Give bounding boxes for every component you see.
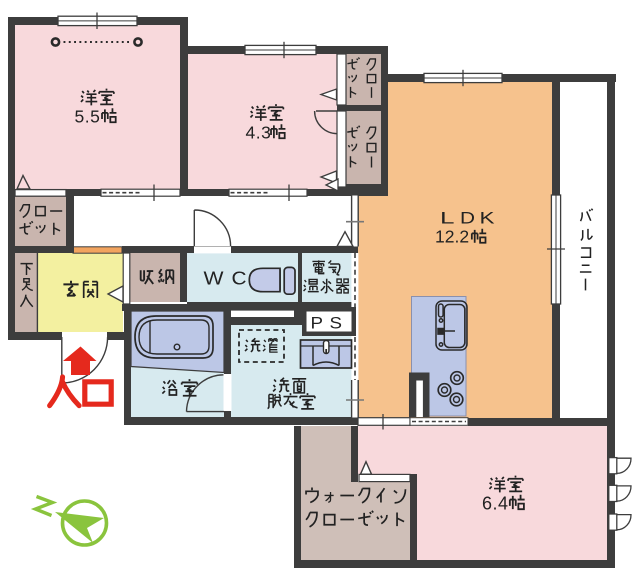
svg-text:4.3: 4.3 xyxy=(246,122,272,142)
svg-text:P: P xyxy=(311,314,324,333)
svg-text:6.4: 6.4 xyxy=(482,493,509,513)
svg-text:W: W xyxy=(204,269,224,289)
svg-text:K: K xyxy=(480,209,495,227)
svg-text:L: L xyxy=(440,209,455,227)
svg-text:S: S xyxy=(330,314,343,333)
svg-text:12.2: 12.2 xyxy=(435,227,469,247)
svg-text:5.5: 5.5 xyxy=(75,106,101,126)
svg-text:D: D xyxy=(460,209,475,227)
svg-text:C: C xyxy=(232,269,247,289)
